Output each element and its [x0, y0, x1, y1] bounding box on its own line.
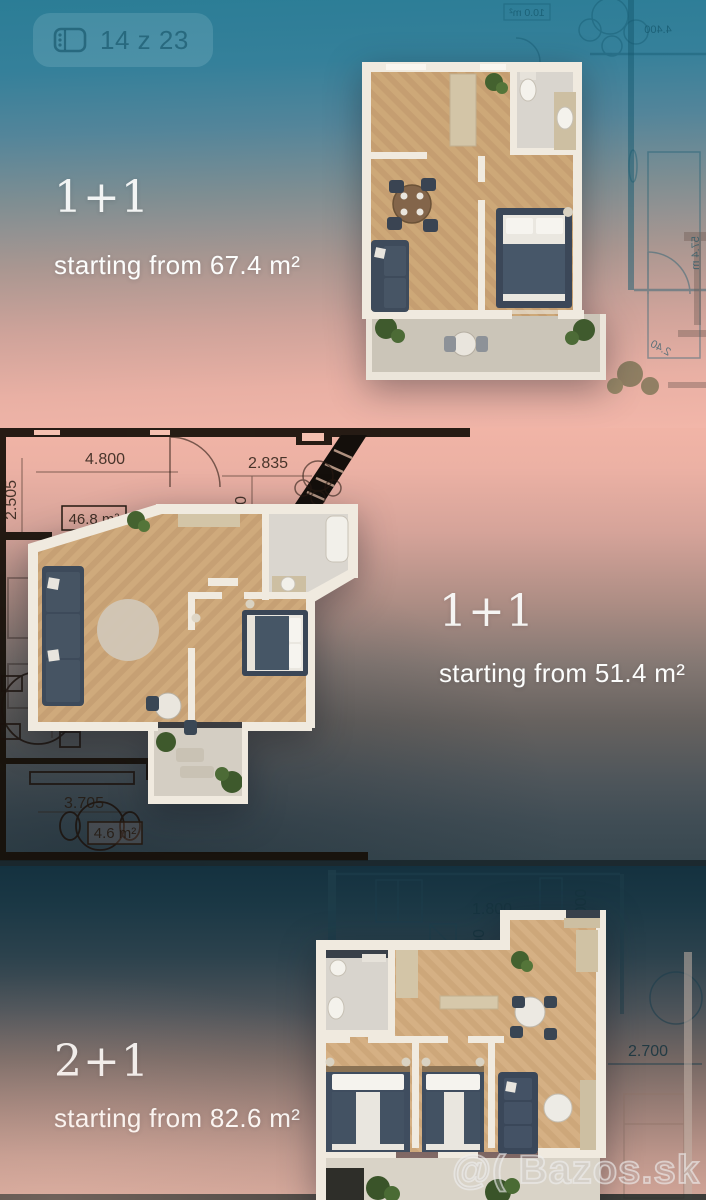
listing-image: 10.0 m² 4.400 57.4 m 2.40 14 z 23 1+ [0, 0, 706, 1200]
floor-plan-render-top [360, 52, 704, 396]
plan-type-title: 2+1 [54, 1036, 150, 1087]
floor-plan-render-middle [26, 500, 366, 804]
gallery-icon [53, 27, 87, 53]
section-top-1plus1: 10.0 m² 4.400 57.4 m 2.40 14 z 23 1+ [0, 0, 706, 428]
dim-label: 2.700 [628, 1043, 668, 1060]
dim-label: 4.800 [85, 451, 125, 468]
plan-type-title: 1+1 [439, 586, 535, 637]
bp-room-area-label: 10.0 m² [509, 7, 545, 19]
plan-area-text: starting from 51.4 m² [439, 658, 685, 689]
bp-dim-label: 4.400 [644, 24, 672, 36]
plan-area-text: starting from 82.6 m² [54, 1103, 300, 1134]
area-label: 4.6 m² [94, 825, 137, 842]
plan-area-text: starting from 67.4 m² [54, 250, 300, 281]
dim-label: 2.835 [248, 455, 288, 472]
photo-counter-badge: 14 z 23 [33, 13, 213, 67]
plan-type-title: 1+1 [54, 172, 150, 223]
photo-counter-label: 14 z 23 [100, 25, 189, 56]
watermark: @( Bazos.sk [452, 1148, 700, 1193]
dim-label: 2.505 [3, 480, 20, 520]
